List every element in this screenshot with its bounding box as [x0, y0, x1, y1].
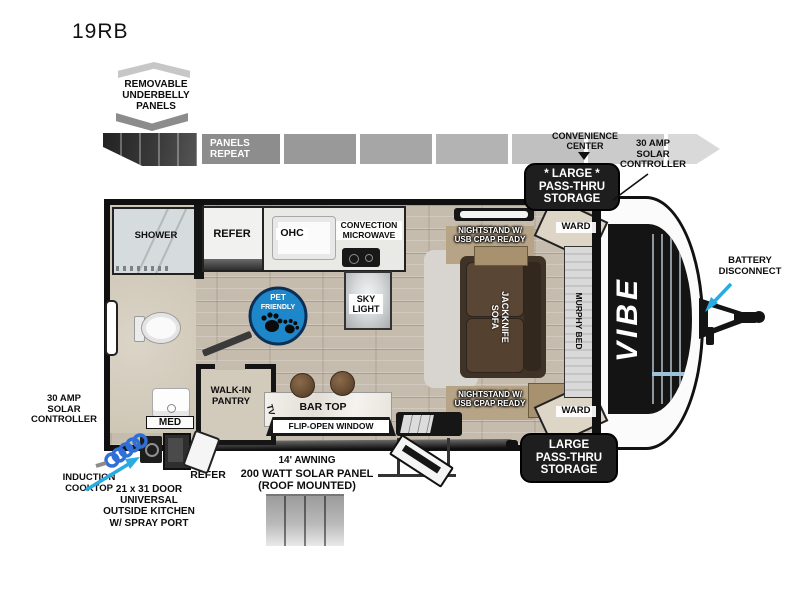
murphy-bed-label: MURPHY BED — [573, 293, 583, 350]
burner-icon — [365, 254, 373, 262]
awning-end-cap — [506, 440, 518, 450]
hitch-assembly — [699, 298, 765, 345]
panel-segment — [436, 134, 508, 164]
storage-rear-tag: LARGE PASS-THRU STORAGE — [520, 433, 618, 483]
skylight-label: SKY LIGHT — [349, 294, 383, 314]
burner-icon — [349, 254, 359, 264]
sofa-label-wrap: JACKKNIFE SOFA — [465, 289, 535, 345]
convenience-center-pointer-icon — [578, 152, 590, 160]
entry-step-well — [396, 412, 462, 436]
outside-cooktop-box — [140, 436, 162, 463]
refer-label: REFER — [206, 228, 258, 240]
refer-front — [204, 259, 264, 270]
entry-steps — [400, 415, 434, 433]
battery-disconnect-label: BATTERY DISCONNECT — [704, 256, 796, 277]
cooktop — [342, 248, 380, 267]
decal-stripes — [652, 234, 686, 404]
solar-controller-bottom-label: 30 AMP SOLAR CONTROLLER — [22, 394, 106, 426]
fan-icon — [145, 443, 159, 457]
awning-label: 14' AWNING — [262, 455, 352, 466]
panel-segment-repeat: PANELS REPEAT — [202, 134, 280, 164]
battery-arrow-icon — [705, 284, 731, 312]
bed-window-top — [454, 208, 534, 221]
panel-segment — [284, 134, 356, 164]
front-cap-decal: VIBE — [608, 224, 692, 414]
solar-panel-graphic — [266, 494, 344, 546]
shower-door-track — [116, 266, 168, 271]
nightstand-bottom-label: NIGHTSTAND W/ USB CPAP READY — [442, 391, 538, 409]
floorplan-canvas: 19RB REMOVABLE UNDERBELLY PANELS PANELS … — [0, 0, 800, 600]
bar-stool — [290, 373, 315, 398]
wardrobe-top-label: WARD — [556, 222, 596, 233]
microwave-label: CONVECTION MICROWAVE — [336, 221, 402, 240]
bathroom-window — [105, 300, 118, 356]
underbelly-label: REMOVABLE UNDERBELLY PANELS — [106, 79, 206, 113]
ohc-label: OHC — [276, 228, 308, 240]
convenience-center-label: CONVENIENCE CENTER — [548, 131, 622, 151]
murphy-bed-label-wrap: MURPHY BED — [538, 271, 618, 371]
storage-front-tag: * LARGE * PASS-THRU STORAGE — [524, 163, 620, 211]
tv-label: TV — [264, 404, 276, 417]
nightstand-top-label: NIGHTSTAND W/ USB CPAP READY — [442, 227, 538, 245]
panels-repeat-label: PANELS REPEAT — [210, 138, 270, 160]
bath-sink — [152, 388, 190, 418]
panel-seams — [103, 133, 197, 166]
shower-label: SHOWER — [124, 231, 188, 242]
toilet-bowl — [141, 312, 181, 344]
badge-line1: PET — [270, 293, 286, 302]
badge-line2: FRIENDLY — [261, 304, 296, 311]
flip-open-window-label: FLIP-OPEN WINDOW — [273, 422, 389, 432]
outside-kitchen-label: 21 x 31 DOOR UNIVERSAL OUTSIDE KITCHEN W… — [82, 484, 216, 529]
underbelly-down-arrow-icon — [116, 113, 188, 131]
bar-top-label: BAR TOP — [288, 402, 358, 414]
solar-controller-top-label: 30 AMP SOLAR CONTROLLER — [612, 139, 694, 171]
outside-refer-door — [168, 438, 183, 462]
spray-nozzle-icon — [96, 463, 106, 466]
pet-friendly-badge: PET FRIENDLY — [248, 286, 308, 346]
panel-segment — [360, 134, 432, 164]
underbelly-panels-graphic — [103, 133, 197, 166]
pantry-door-opening — [215, 362, 245, 370]
med-cabinet-label: MED — [146, 416, 194, 429]
decal-accent-stripe — [652, 372, 686, 376]
faucet-icon — [167, 404, 176, 413]
pantry-label: WALK-IN PANTRY — [200, 386, 262, 407]
wardrobe-bottom-label: WARD — [556, 406, 596, 417]
nightstand-top-cabinet — [474, 246, 528, 266]
sofa-label: JACKKNIFE SOFA — [490, 291, 510, 343]
page-title: 19RB — [72, 20, 129, 44]
solar-panel-label: 200 WATT SOLAR PANEL (ROOF MOUNTED) — [232, 468, 382, 493]
window-glass — [460, 211, 528, 218]
bar-stool — [330, 371, 355, 396]
underbelly-up-arrow-icon — [118, 62, 190, 78]
